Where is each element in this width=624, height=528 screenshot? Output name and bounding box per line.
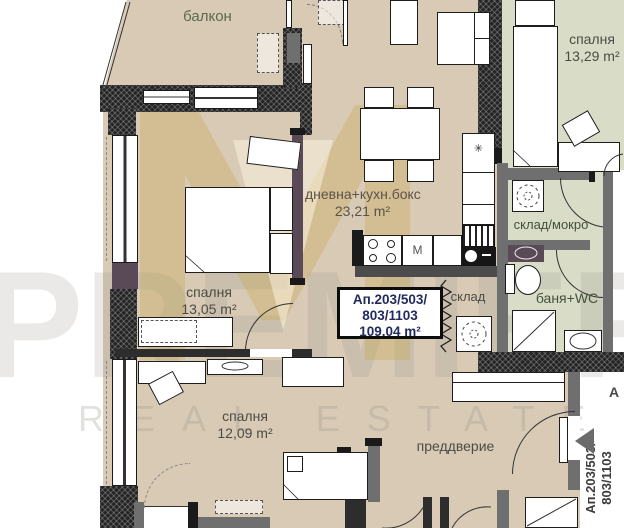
wall-entrance-pier-top [568, 372, 580, 416]
apartment-label-box: Ап.203/503/ 803/1103 109.04 m² [337, 287, 443, 339]
wall-bottom-run [198, 517, 270, 528]
bed-pillow [515, 0, 555, 26]
label-bedroom-bottom: спалня 12,09 m² [199, 408, 291, 442]
apartment-label-line2: 803/1103 [340, 308, 440, 324]
wall-bottom-right-exterior [478, 352, 624, 372]
kitchen-column: ✳ [462, 133, 495, 225]
label-bathroom: баня+WC [532, 290, 602, 307]
shower-bottom-icon [525, 497, 578, 528]
bedroom-left-area: 13,05 m² [163, 301, 255, 318]
window-top-2 [194, 87, 258, 109]
wall-below-bath [497, 490, 509, 528]
hall-cabinet [452, 372, 565, 402]
desk-top [558, 142, 620, 172]
kitchen-counter [433, 235, 462, 266]
bed-left [185, 187, 270, 273]
wall-pier-bottom-a [345, 500, 366, 528]
fridge-cabinet [462, 225, 495, 247]
doorframe-bottom-a [423, 497, 432, 528]
entrance-label-line2: 803/1103 [599, 424, 615, 528]
wall-kitchen-pier [352, 230, 363, 266]
wall-door-pier-left [134, 502, 144, 528]
appliance-star-label: ✳ [463, 142, 494, 155]
window-dash-bottom [106, 361, 110, 484]
window-living-top [343, 0, 348, 46]
dining-chair [407, 87, 434, 108]
dining-table [360, 108, 440, 160]
bedroom-bottom-area: 12,09 m² [199, 425, 291, 442]
storage-wet-name: склад/мокро [514, 217, 589, 232]
window-french-bottom [112, 359, 137, 486]
kitchen-sink-icon [462, 247, 496, 266]
toilet-tank [505, 264, 515, 294]
shower-icon [512, 310, 556, 352]
entrance-arrow-icon [575, 428, 594, 454]
window-top-1 [143, 90, 190, 104]
bedroom-top-area: 13,29 m² [547, 48, 624, 65]
washing-machine-icon [512, 180, 544, 212]
bed-bottom-pillow [287, 456, 303, 472]
label-hallway: преддверие [408, 438, 503, 455]
wall-bottom-left-corner [100, 486, 138, 528]
balcony-door-leaf [303, 44, 312, 84]
door-gap-bedroom-bottom [144, 506, 188, 528]
label-storage-wet: склад/мокро [505, 217, 597, 233]
appliance-m: М [402, 235, 433, 266]
hallway-name: преддверие [417, 438, 495, 454]
sofa-cushion-line [474, 38, 489, 39]
nightstand [270, 187, 293, 231]
cabinet-line [453, 382, 564, 383]
window-dash-top [106, 137, 110, 261]
sink-tap [482, 254, 491, 256]
storage-name: склад [451, 289, 486, 304]
dining-chair [364, 160, 394, 182]
bathroom-name: баня+WC [536, 290, 598, 306]
wall-cap-a [290, 128, 305, 135]
wall-hall-divider-cap [365, 438, 382, 446]
balcony-name: балкон [183, 8, 232, 25]
apartment-label-line3: 109.04 m² [340, 324, 440, 340]
living-name: дневна+кухн.бокс [305, 186, 420, 203]
wall-balcony-pier-block [287, 33, 300, 63]
entrance-partial-letter: А [609, 384, 619, 400]
desk-bottom-right [282, 357, 344, 387]
label-bedroom-left: спалня 13,05 m² [163, 284, 255, 318]
shelf-bottom [207, 359, 263, 375]
bedroom-bottom-name: спалня [199, 408, 291, 425]
vanity-unit [508, 245, 544, 262]
dining-chair [407, 160, 434, 182]
sink-bowl [465, 250, 477, 262]
balcony-table [257, 33, 279, 73]
wardrobe-living [318, 0, 345, 25]
label-living: дневна+кухн.бокс 23,21 m² [305, 186, 420, 220]
water-heater-icon [456, 316, 492, 352]
bath-sink-icon [564, 330, 602, 352]
sofa [437, 12, 490, 65]
living-area: 23,21 m² [305, 203, 420, 220]
bedroom-top-name: спалня [547, 31, 624, 48]
tv-stand [390, 0, 418, 45]
desk-inner [141, 320, 197, 343]
window-french-top [112, 135, 138, 263]
appliance-m-label: М [413, 243, 423, 257]
wall-kitchen [355, 266, 497, 277]
apartment-label-line1: Ап.203/503/ [340, 292, 440, 308]
nightstand [270, 233, 293, 274]
label-bedroom-top: спалня 13,29 m² [547, 31, 624, 65]
wardrobe-bottom [215, 500, 263, 514]
column-divider [463, 204, 494, 205]
wall-right-core [603, 170, 613, 370]
wall-cap-b [290, 278, 305, 285]
column-divider [463, 172, 494, 173]
label-balcony: балкон [160, 8, 255, 26]
wall-hall-divider [368, 444, 380, 502]
desk-left [138, 317, 233, 347]
wall-left-pier [112, 263, 138, 289]
wall-top-left-corner [108, 108, 136, 135]
floor-plan: PREMIER REAL ESTATE [0, 0, 624, 528]
label-storage: склад [443, 289, 493, 305]
stove-icon [363, 235, 402, 266]
window-balcony-thin [286, 0, 292, 28]
dining-chair [364, 87, 394, 108]
doorframe-bottom-b [440, 497, 449, 528]
bedroom-left-name: спалня [163, 284, 255, 301]
